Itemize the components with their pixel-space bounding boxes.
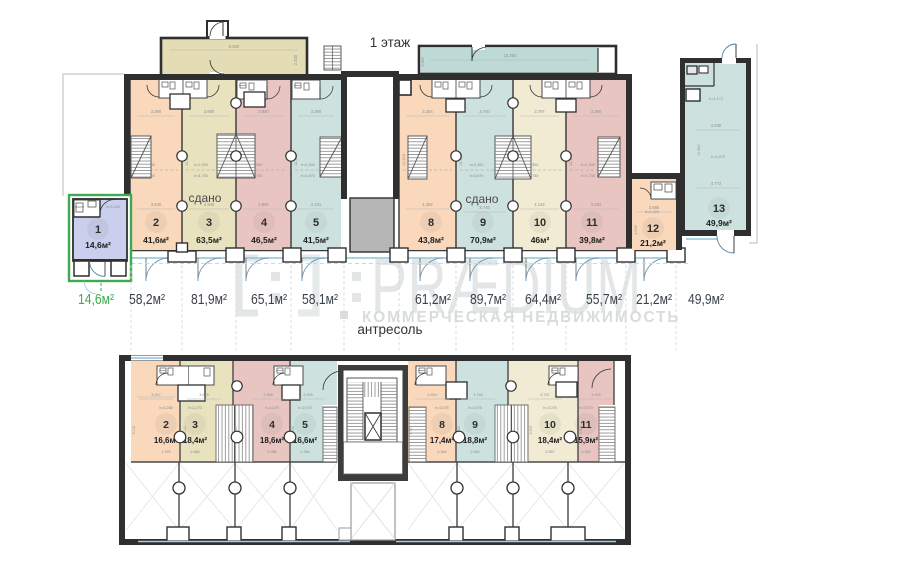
svg-text:12: 12 bbox=[647, 223, 659, 235]
svg-text:1 этаж: 1 этаж bbox=[370, 35, 410, 50]
svg-text:3.968: 3.968 bbox=[263, 393, 273, 397]
svg-text:12.215: 12.215 bbox=[402, 154, 406, 166]
svg-text:3.797: 3.797 bbox=[540, 393, 550, 397]
svg-text:14,6м²: 14,6м² bbox=[78, 292, 114, 308]
svg-text:2.597: 2.597 bbox=[545, 450, 554, 454]
svg-text:3.746: 3.746 bbox=[473, 393, 483, 397]
svg-text:3.394: 3.394 bbox=[591, 202, 602, 207]
svg-text:сдано: сдано bbox=[466, 192, 499, 206]
svg-text:1.975: 1.975 bbox=[161, 450, 170, 454]
svg-text:11: 11 bbox=[580, 419, 591, 431]
svg-text:14,6м²: 14,6м² bbox=[85, 240, 111, 250]
svg-text:70,9м²: 70,9м² bbox=[470, 235, 496, 245]
svg-text:2: 2 bbox=[163, 419, 169, 431]
svg-text:41,5м²: 41,5м² bbox=[303, 235, 329, 245]
svg-text:58,1м²: 58,1м² bbox=[302, 292, 338, 308]
svg-text:46,5м²: 46,5м² bbox=[251, 235, 277, 245]
svg-text:5: 5 bbox=[313, 217, 319, 229]
svg-text:58,2м²: 58,2м² bbox=[129, 292, 165, 308]
svg-text:5.985: 5.985 bbox=[421, 58, 425, 67]
svg-text:h=2,270: h=2,270 bbox=[188, 406, 201, 410]
svg-text:4.101: 4.101 bbox=[311, 202, 322, 207]
svg-text:6.301: 6.301 bbox=[409, 426, 413, 435]
svg-text:3.945: 3.945 bbox=[199, 393, 209, 397]
svg-text:4.384: 4.384 bbox=[422, 202, 433, 207]
svg-text:1: 1 bbox=[95, 224, 101, 236]
svg-text:антресоль: антресоль bbox=[357, 322, 422, 337]
svg-text:9: 9 bbox=[480, 217, 486, 229]
svg-text:18,4м²: 18,4м² bbox=[183, 436, 207, 445]
svg-text:11: 11 bbox=[586, 217, 598, 229]
svg-text:61,2м²: 61,2м² bbox=[415, 292, 451, 308]
svg-text:3: 3 bbox=[192, 419, 198, 431]
svg-text:49,9м²: 49,9м² bbox=[688, 292, 724, 308]
svg-text:17,4м²: 17,4м² bbox=[430, 436, 454, 445]
svg-text:89,7м²: 89,7м² bbox=[470, 292, 506, 308]
svg-text:10.300: 10.300 bbox=[504, 53, 517, 58]
svg-text:81,9м²: 81,9м² bbox=[191, 292, 227, 308]
svg-text:8: 8 bbox=[439, 419, 445, 431]
svg-text:h=2,070: h=2,070 bbox=[298, 406, 311, 410]
svg-text:13: 13 bbox=[713, 203, 725, 215]
svg-text:15,9м²: 15,9м² bbox=[574, 436, 598, 445]
svg-text:3.940: 3.940 bbox=[151, 202, 162, 207]
svg-text:3.354: 3.354 bbox=[427, 393, 437, 397]
svg-text:41,6м²: 41,6м² bbox=[143, 235, 169, 245]
svg-text:3.980: 3.980 bbox=[204, 109, 215, 114]
svg-text:h=2,075: h=2,075 bbox=[468, 406, 481, 410]
svg-text:6.302: 6.302 bbox=[529, 426, 533, 435]
svg-text:h=2,300: h=2,300 bbox=[581, 163, 595, 167]
svg-text:3.267: 3.267 bbox=[151, 393, 161, 397]
svg-text:4.772: 4.772 bbox=[711, 181, 722, 186]
svg-text:h=2,300: h=2,300 bbox=[470, 163, 484, 167]
svg-text:49,9м²: 49,9м² bbox=[706, 218, 732, 228]
svg-text:8: 8 bbox=[428, 217, 434, 229]
svg-text:65,1м²: 65,1м² bbox=[251, 292, 287, 308]
svg-text:3.390: 3.390 bbox=[151, 109, 162, 114]
svg-text:5: 5 bbox=[302, 419, 308, 431]
svg-text:4: 4 bbox=[261, 217, 268, 229]
svg-text:10: 10 bbox=[544, 419, 556, 431]
svg-text:h=4,172: h=4,172 bbox=[709, 97, 723, 101]
svg-text:3.940: 3.940 bbox=[258, 109, 269, 114]
svg-text:18,4м²: 18,4м² bbox=[538, 436, 562, 445]
svg-text:46м²: 46м² bbox=[531, 235, 550, 245]
svg-text:11.904: 11.904 bbox=[697, 144, 701, 155]
svg-text:h=2,280: h=2,280 bbox=[159, 406, 172, 410]
svg-text:2.330: 2.330 bbox=[293, 54, 298, 65]
svg-text:55,7м²: 55,7м² bbox=[586, 292, 622, 308]
svg-text:64,4м²: 64,4м² bbox=[525, 292, 561, 308]
svg-text:16,6м²: 16,6м² bbox=[293, 436, 317, 445]
svg-text:h=3,075: h=3,075 bbox=[543, 406, 556, 410]
svg-text:3.390: 3.390 bbox=[591, 109, 602, 114]
svg-text:21,2м²: 21,2м² bbox=[636, 292, 672, 308]
svg-text:9: 9 bbox=[472, 419, 478, 431]
svg-text:h=2,300: h=2,300 bbox=[194, 163, 208, 167]
svg-text:h=4,575: h=4,575 bbox=[711, 155, 725, 159]
svg-text:2.545: 2.545 bbox=[470, 450, 479, 454]
svg-text:3.797: 3.797 bbox=[534, 109, 545, 114]
svg-text:2.686: 2.686 bbox=[190, 450, 199, 454]
svg-text:2.155: 2.155 bbox=[581, 450, 590, 454]
svg-text:2.344: 2.344 bbox=[437, 450, 446, 454]
svg-text:4: 4 bbox=[269, 419, 275, 431]
svg-text:4.030: 4.030 bbox=[711, 123, 722, 128]
svg-text:21,2м²: 21,2м² bbox=[640, 238, 666, 248]
svg-text:10: 10 bbox=[534, 217, 546, 229]
svg-text:h=4,670: h=4,670 bbox=[470, 174, 484, 178]
svg-text:3.390: 3.390 bbox=[311, 109, 322, 114]
svg-text:h=4,730: h=4,730 bbox=[194, 174, 208, 178]
svg-text:h=4,670: h=4,670 bbox=[301, 174, 315, 178]
svg-text:2: 2 bbox=[153, 217, 159, 229]
svg-text:3: 3 bbox=[206, 217, 212, 229]
svg-text:39,8м²: 39,8м² bbox=[579, 235, 605, 245]
svg-text:3.354: 3.354 bbox=[422, 109, 433, 114]
svg-text:h=2,300: h=2,300 bbox=[301, 163, 315, 167]
svg-text:h=4,730: h=4,730 bbox=[581, 174, 595, 178]
svg-text:9.600: 9.600 bbox=[229, 44, 240, 49]
svg-text:2.346: 2.346 bbox=[300, 450, 309, 454]
svg-text:63,5м²: 63,5м² bbox=[196, 235, 222, 245]
svg-text:2.086: 2.086 bbox=[267, 450, 276, 454]
svg-text:18,8м²: 18,8м² bbox=[463, 436, 487, 445]
svg-text:h=4,420: h=4,420 bbox=[645, 209, 660, 214]
svg-text:3.890: 3.890 bbox=[258, 202, 269, 207]
svg-text:3.590: 3.590 bbox=[634, 225, 638, 235]
svg-text:сдано: сдано bbox=[189, 191, 222, 205]
svg-text:3.265: 3.265 bbox=[591, 393, 601, 397]
svg-text:6.118: 6.118 bbox=[132, 426, 136, 435]
svg-text:18,6м²: 18,6м² bbox=[260, 436, 284, 445]
svg-text:h=2,070: h=2,070 bbox=[579, 406, 592, 410]
svg-text:4.144: 4.144 bbox=[534, 202, 545, 207]
svg-text:3.740: 3.740 bbox=[479, 109, 490, 114]
svg-text:h=3,100: h=3,100 bbox=[106, 205, 120, 209]
svg-text:3.265: 3.265 bbox=[303, 393, 313, 397]
svg-text:h=2,075: h=2,075 bbox=[435, 406, 448, 410]
svg-text:h=2,075: h=2,075 bbox=[265, 406, 278, 410]
svg-text:43,8м²: 43,8м² bbox=[418, 235, 444, 245]
